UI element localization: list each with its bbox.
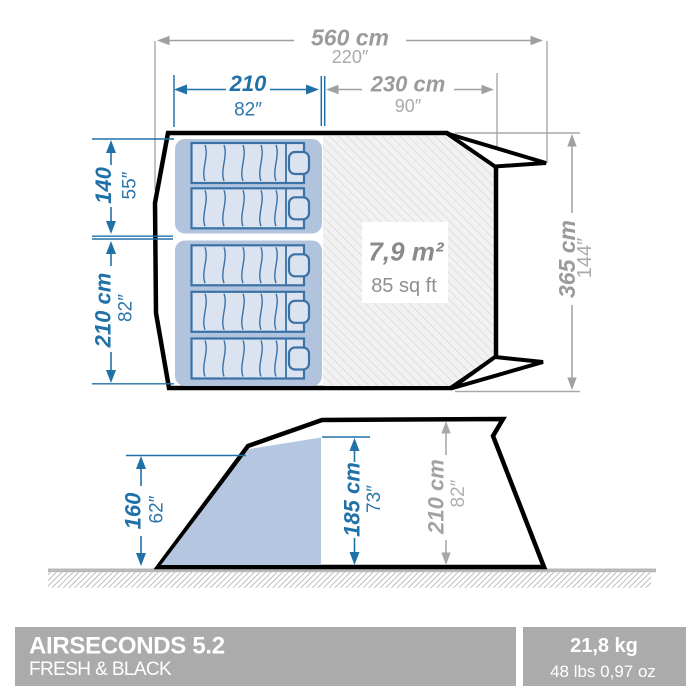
svg-text:FRESH & BLACK: FRESH & BLACK [29, 659, 172, 680]
svg-text:210 cm: 210 cm [91, 273, 116, 349]
svg-text:210 cm: 210 cm [424, 459, 449, 535]
svg-text:160: 160 [121, 492, 146, 529]
svg-text:82″: 82″ [116, 294, 137, 322]
svg-text:73″: 73″ [364, 485, 385, 513]
svg-text:AIRSECONDS 5.2: AIRSECONDS 5.2 [29, 633, 225, 660]
svg-text:230 cm: 230 cm [370, 72, 446, 97]
svg-text:140: 140 [91, 166, 116, 203]
svg-text:85 sq ft: 85 sq ft [371, 275, 437, 297]
svg-text:210: 210 [229, 71, 267, 96]
svg-text:21,8 kg: 21,8 kg [570, 635, 638, 657]
svg-text:62″: 62″ [147, 495, 168, 523]
svg-text:220″: 220″ [332, 47, 369, 67]
svg-text:7,9 m²: 7,9 m² [368, 237, 444, 267]
svg-text:185 cm: 185 cm [340, 462, 365, 537]
svg-text:144″: 144″ [574, 238, 596, 278]
svg-text:82″: 82″ [448, 479, 469, 507]
svg-text:55″: 55″ [120, 171, 141, 199]
svg-text:48 lbs 0,97 oz: 48 lbs 0,97 oz [550, 662, 656, 681]
svg-text:90″: 90″ [395, 96, 422, 116]
svg-text:82″: 82″ [234, 100, 262, 121]
